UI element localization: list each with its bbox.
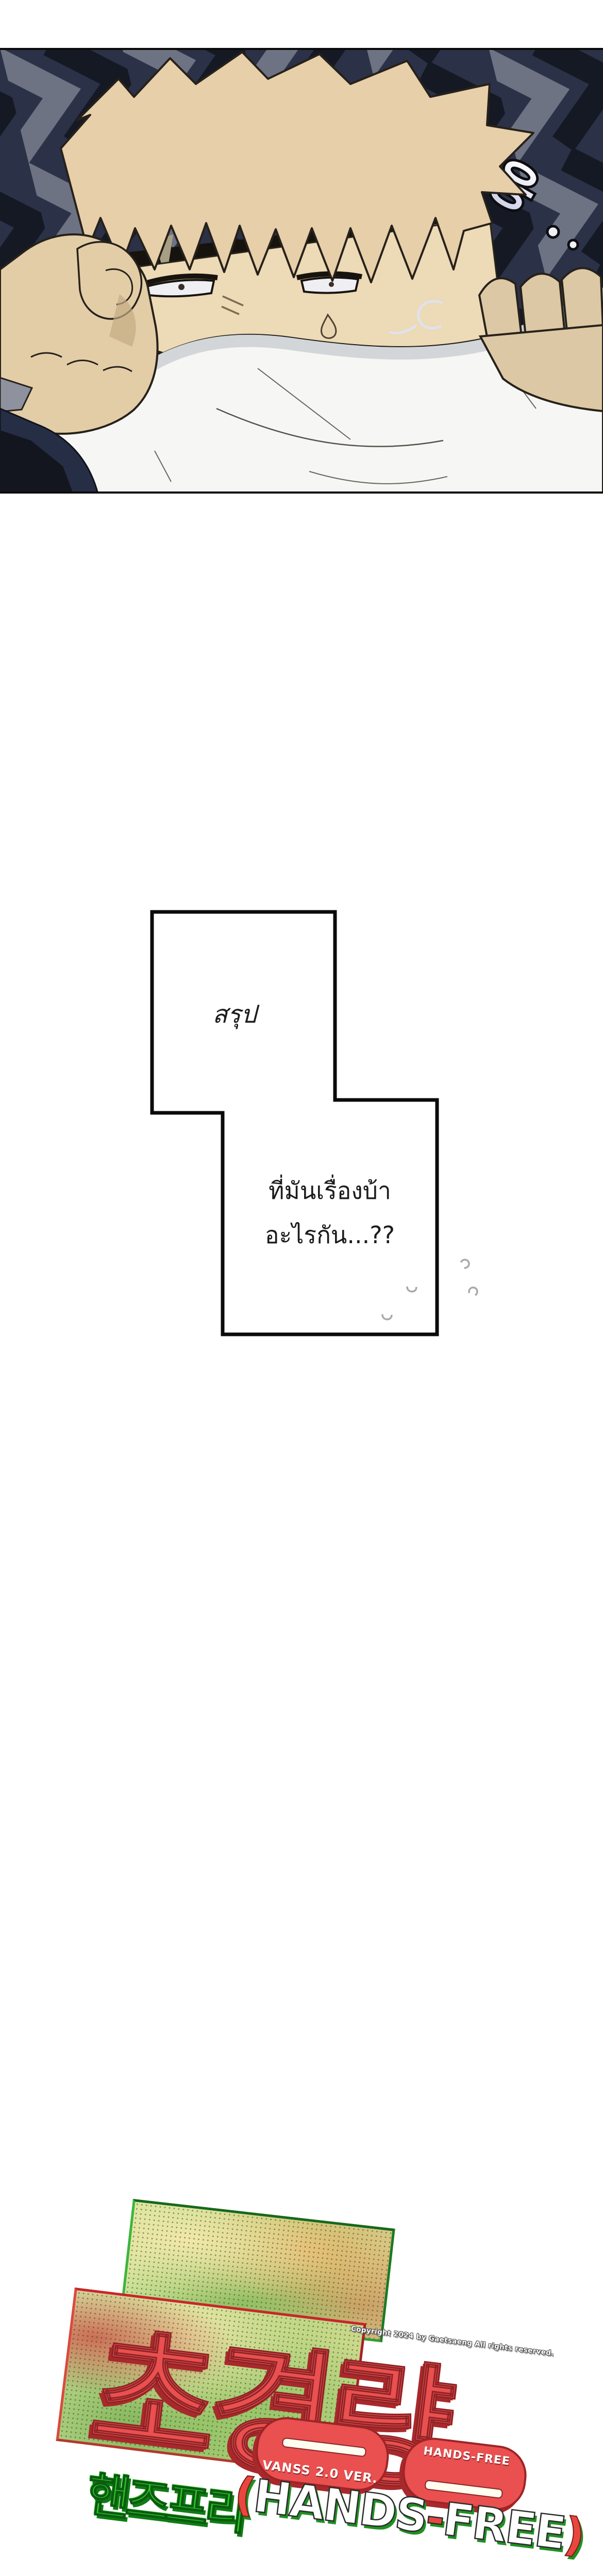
hands-free-badge: HANDS-FREE bbox=[407, 2443, 527, 2470]
bubble-outline bbox=[152, 912, 437, 1334]
pill-slot bbox=[281, 2437, 366, 2458]
webtoon-page: 끄응 bbox=[0, 0, 603, 2576]
series-logo: Copyright 2024 by Gaetsaeng All rights r… bbox=[0, 2184, 603, 2576]
sfx-dot bbox=[547, 226, 559, 238]
sfx-dot bbox=[568, 240, 578, 249]
bubble-text-3: อะไรกัน...?? bbox=[265, 1221, 395, 1249]
panel-top-border bbox=[0, 48, 603, 50]
bubble-text-1: สรุป bbox=[212, 1000, 260, 1029]
speech-bubble: สรุป ที่มันเรื่องบ้า อะไรกัน...?? bbox=[139, 899, 479, 1347]
subtitle-en-2: FREE bbox=[440, 2493, 567, 2560]
character-illustration: 끄응 bbox=[0, 48, 603, 494]
comic-panel: 끄응 bbox=[0, 48, 603, 494]
bubble-text-2: ที่มันเรื่องบ้า bbox=[269, 1174, 391, 1205]
panel-bottom-border bbox=[0, 492, 603, 494]
